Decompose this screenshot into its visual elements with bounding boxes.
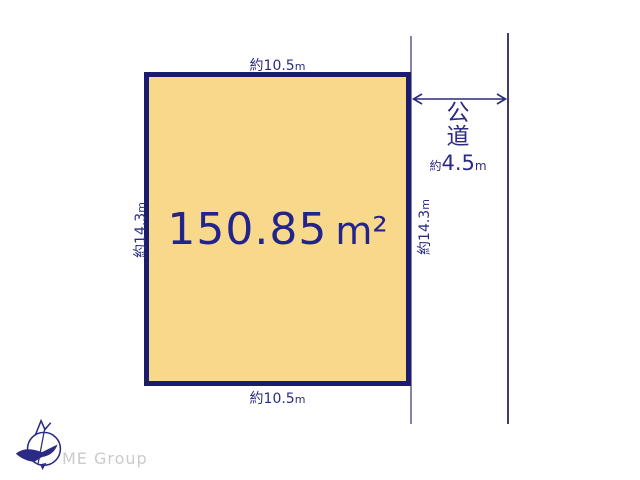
site-plan-diagram: 150.85m² 約10.5m 約10.5m 約14.3m 約14.3m 公 道…: [0, 0, 640, 480]
dimension-bottom-unit: m: [295, 393, 306, 406]
dimension-bottom: 約10.5m: [144, 388, 411, 408]
company-logo: ME Group: [14, 414, 194, 474]
dimension-left-prefix: 約: [133, 244, 149, 258]
dimension-bottom-value: 10.5: [264, 391, 295, 407]
road-name-label: 公 道: [436, 101, 480, 149]
dimension-top-value: 10.5: [264, 58, 295, 74]
land-plot: 150.85m²: [144, 72, 411, 386]
dimension-left-unit: m: [135, 202, 148, 213]
road-width-value: 4.5: [441, 151, 474, 175]
dimension-right-unit: m: [419, 199, 432, 210]
plot-area-unit: m²: [335, 209, 387, 253]
dimension-top: 約10.5m: [144, 55, 411, 75]
dimension-top-prefix: 約: [250, 58, 264, 74]
dimension-right: 約14.3m: [414, 195, 434, 259]
dimension-top-unit: m: [295, 60, 306, 73]
road-name-char-bottom: 道: [436, 125, 480, 149]
dimension-left: 約14.3m: [130, 198, 150, 262]
logo-text: ME Group: [62, 449, 148, 468]
dimension-left-value: 14.3: [133, 213, 149, 244]
road-width-prefix: 約: [429, 157, 441, 174]
road-width-label: 約4.5m: [424, 151, 492, 175]
plot-area-value: 150.85: [167, 204, 327, 255]
road-width-unit: m: [475, 159, 487, 173]
road-name-char-top: 公: [436, 101, 480, 125]
plot-area-label: 150.85m²: [167, 204, 387, 255]
dimension-right-value: 14.3: [417, 210, 433, 241]
dimension-bottom-prefix: 約: [250, 391, 264, 407]
dimension-right-prefix: 約: [417, 241, 433, 255]
